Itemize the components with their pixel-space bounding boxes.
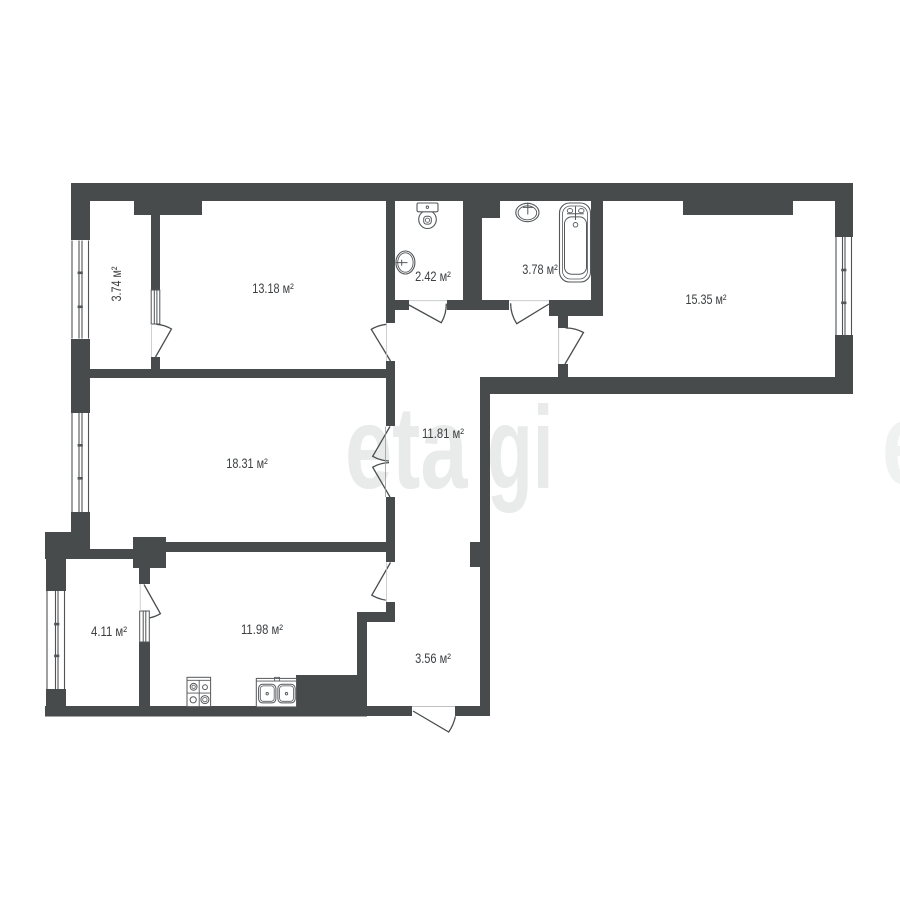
svg-text:18.31 м²: 18.31 м² — [226, 456, 268, 471]
svg-text:15.35 м²: 15.35 м² — [686, 292, 727, 307]
svg-text:11.98 м²: 11.98 м² — [241, 622, 283, 637]
svg-text:11.81 м²: 11.81 м² — [422, 426, 464, 441]
svg-text:eta: eta — [345, 382, 469, 514]
svg-text:gi: gi — [487, 382, 554, 513]
svg-text:3.74 м²: 3.74 м² — [109, 266, 124, 301]
svg-text:3.78 м²: 3.78 м² — [522, 262, 558, 277]
svg-text:13.18 м²: 13.18 м² — [252, 281, 294, 296]
svg-text:4.11 м²: 4.11 м² — [91, 624, 127, 639]
svg-text:2.42 м²: 2.42 м² — [415, 269, 451, 284]
svg-text:3.56 м²: 3.56 м² — [415, 651, 451, 666]
svg-text:et: et — [882, 378, 900, 510]
